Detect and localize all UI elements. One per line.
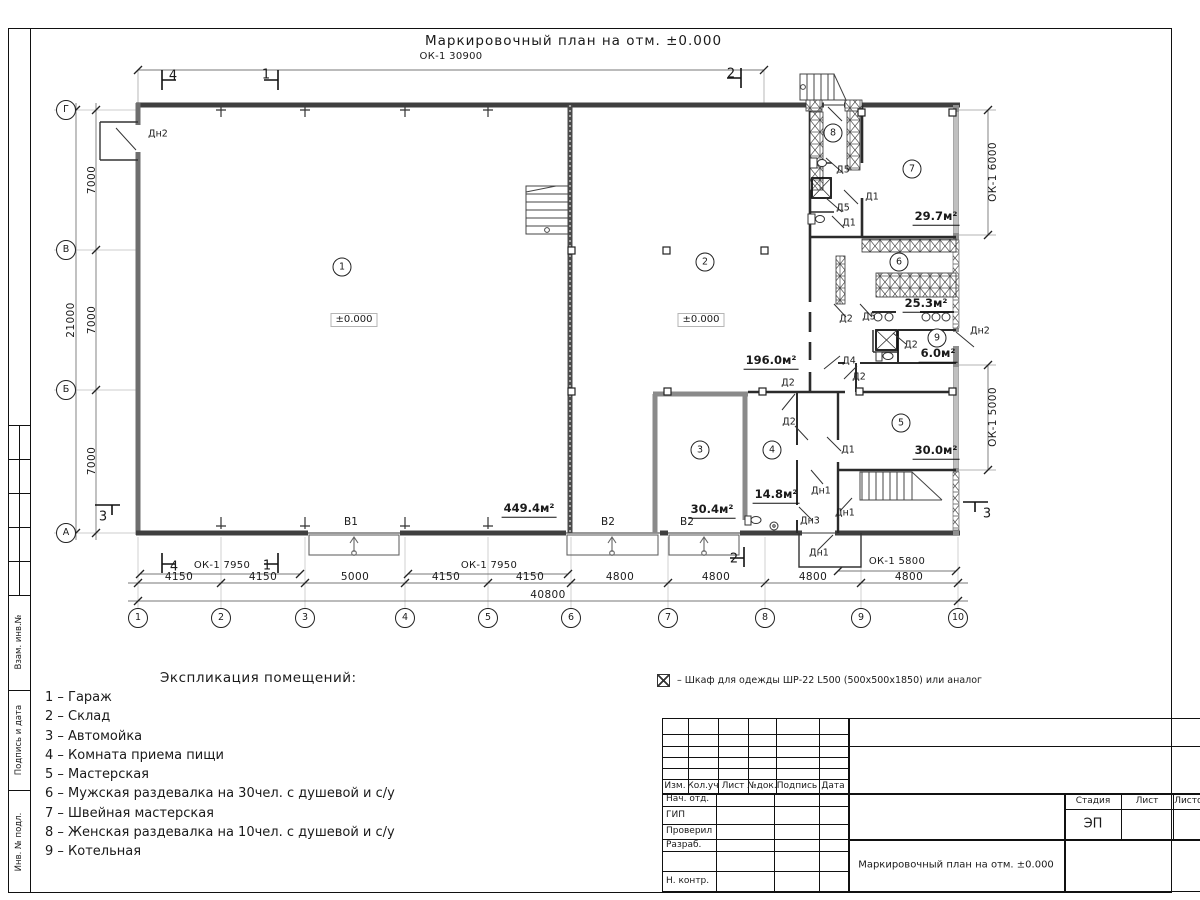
door-label: Дн1 <box>811 486 831 496</box>
gate-label: В2 <box>601 517 615 528</box>
room-number-bubble: 1 <box>333 258 352 277</box>
tb-stage-value: ЭП <box>1084 817 1103 832</box>
frame-top <box>8 28 1172 29</box>
window-dimension-label: ОК-1 5800 <box>869 557 925 567</box>
stamp-inv-podl: Инв. № подл. <box>14 813 24 872</box>
axis-bubble-column: 4 <box>395 608 415 628</box>
section-mark-label: 2 <box>727 68 735 81</box>
dimension-value: 4800 <box>702 572 730 583</box>
window-dimension-label: ОК-1 7950 <box>194 561 250 571</box>
axis-bubble-column: 2 <box>211 608 231 628</box>
room-area-label: 30.0м² <box>913 445 960 460</box>
tb-col-podpis: Подпись <box>777 781 817 791</box>
tb-doc-title: Маркировочный план на отм. ±0.000 <box>858 860 1054 871</box>
door-label: Д5 <box>862 312 875 322</box>
tb-row-nach-otd: Нач. отд. <box>666 794 709 804</box>
dimension-value-vertical: 7000 <box>87 166 98 194</box>
room-number-bubble: 5 <box>892 414 911 433</box>
room-number-bubble: 6 <box>890 253 909 272</box>
door-label: Д2 <box>782 417 795 427</box>
dimension-value: 40800 <box>530 590 565 601</box>
window-dimension-label: ОК-1 7950 <box>461 561 517 571</box>
axis-bubble-column: 8 <box>755 608 775 628</box>
wardrobe-note-text: – Шкаф для одежды ШР-22 L500 (500х500х18… <box>677 675 982 686</box>
legend-item: 7 – Швейная мастерская <box>45 804 395 823</box>
room-number-bubble: 7 <box>903 160 922 179</box>
axis-bubble-row: Б <box>56 380 76 400</box>
door-label: Дн2 <box>148 129 168 139</box>
dimension-value-vertical: 7000 <box>87 447 98 475</box>
dimension-value-vertical: ОК-1 5000 <box>988 387 999 447</box>
tb-sheet-header: Лист <box>1136 796 1159 806</box>
legend-item: 3 – Автомойка <box>45 727 395 746</box>
legend-list: 1 – Гараж2 – Склад3 – Автомойка4 – Комна… <box>45 688 395 862</box>
door-label: Д1 <box>865 192 878 202</box>
plan-title: Маркировочный план на отм. ±0.000 <box>425 33 722 49</box>
legend-item: 6 – Мужская раздевалка на 30чел. с душев… <box>45 784 395 803</box>
dimension-value: 4800 <box>606 572 634 583</box>
tb-row-proveril: Проверил <box>666 826 712 836</box>
gate-label: В2 <box>680 517 694 528</box>
room-number-bubble: 9 <box>928 329 947 348</box>
tb-sheets-header: Листов <box>1174 796 1200 806</box>
legend-item: 2 – Склад <box>45 707 395 726</box>
dimension-value-vertical: 7000 <box>87 306 98 334</box>
door-label: Д2 <box>839 314 852 324</box>
tb-col-izm: Изм. <box>664 781 685 791</box>
door-label: Д1 <box>842 218 855 228</box>
axis-bubble-row: Г <box>56 100 76 120</box>
tb-row-razrab: Разраб. <box>666 840 701 850</box>
door-label: Дн3 <box>800 516 820 526</box>
tb-col-list: Лист <box>722 781 745 791</box>
room-number-bubble: 8 <box>824 124 843 143</box>
dimension-value: 4150 <box>432 572 460 583</box>
window-dimension-label: ОК-1 30900 <box>420 52 483 62</box>
axis-bubble-row: В <box>56 240 76 260</box>
section-mark-label: 4 <box>169 70 177 83</box>
legend-item: 1 – Гараж <box>45 688 395 707</box>
legend-heading: Экспликация помещений: <box>160 670 357 686</box>
room-area-label: 449.4м² <box>502 503 557 518</box>
stamp-podpis-data: Подпись и дата <box>14 705 24 775</box>
section-mark-label: 1 <box>262 69 270 82</box>
tb-col-data: Дата <box>821 781 844 791</box>
tb-row-nkontr: Н. контр. <box>666 876 709 886</box>
door-label: Дн2 <box>970 326 990 336</box>
section-mark-label: 3 <box>983 508 991 521</box>
axis-bubble-column: 1 <box>128 608 148 628</box>
dimension-value-vertical: 21000 <box>66 302 77 337</box>
tb-row-gip: ГИП <box>666 810 685 820</box>
room-area-label: 196.0м² <box>744 355 799 370</box>
door-label: Дн1 <box>835 508 855 518</box>
door-label: Д5 <box>836 203 849 213</box>
gate-label: В1 <box>344 517 358 528</box>
level-mark: ±0.000 <box>330 313 377 327</box>
dimension-value: 4150 <box>516 572 544 583</box>
axis-bubble-column: 9 <box>851 608 871 628</box>
legend-item: 4 – Комната приема пищи <box>45 746 395 765</box>
door-label: Д1 <box>841 445 854 455</box>
door-label: Дн1 <box>809 548 829 558</box>
dimension-value: 4150 <box>165 572 193 583</box>
room-number-bubble: 4 <box>763 441 782 460</box>
axis-bubble-row: А <box>56 523 76 543</box>
room-area-label: 14.8м² <box>753 489 800 504</box>
axis-bubble-column: 5 <box>478 608 498 628</box>
dimension-value: 4800 <box>895 572 923 583</box>
dimension-value: 4150 <box>249 572 277 583</box>
room-area-label: 6.0м² <box>919 348 958 363</box>
door-label: Д2 <box>781 378 794 388</box>
drawing-sheet: Маркировочный план на отм. ±0.000 ОК-1 3… <box>0 0 1200 900</box>
stamp-vzam-inv: Взам. инв.№ <box>14 614 24 669</box>
room-area-label: 25.3м² <box>903 298 950 313</box>
door-label: Д5 <box>836 165 849 175</box>
title-block: Изм. Кол.уч Лист №док. Подпись Дата Нач.… <box>662 718 1200 892</box>
level-mark: ±0.000 <box>677 313 724 327</box>
axis-bubble-column: 7 <box>658 608 678 628</box>
side-stamp: Взам. инв.№ Подпись и дата Инв. № подл. <box>8 28 31 893</box>
legend-item: 8 – Женская раздевалка на 10чел. с душев… <box>45 823 395 842</box>
tb-col-ndok: №док. <box>747 781 776 791</box>
room-area-label: 29.7м² <box>913 211 960 226</box>
door-label: Д4 <box>842 356 855 366</box>
legend-item: 5 – Мастерская <box>45 765 395 784</box>
door-label: Д2 <box>904 340 917 350</box>
tb-col-koluch: Кол.уч <box>687 781 718 791</box>
wardrobe-symbol-icon <box>657 674 670 687</box>
section-mark-label: 2 <box>730 553 738 566</box>
frame-bottom <box>8 892 1172 893</box>
axis-bubble-column: 10 <box>948 608 968 628</box>
door-label: Д2 <box>852 372 865 382</box>
room-number-bubble: 3 <box>691 441 710 460</box>
dimension-value: 4800 <box>799 572 827 583</box>
axis-bubble-column: 3 <box>295 608 315 628</box>
dimension-value: 5000 <box>341 572 369 583</box>
axis-bubble-column: 6 <box>561 608 581 628</box>
dimension-value-vertical: ОК-1 6000 <box>988 142 999 202</box>
legend-item: 9 – Котельная <box>45 842 395 861</box>
section-mark-label: 3 <box>99 511 107 524</box>
room-number-bubble: 2 <box>696 253 715 272</box>
tb-stage-header: Стадия <box>1076 796 1111 806</box>
floor-plan-svg <box>0 0 1200 660</box>
room-area-label: 30.4м² <box>689 504 736 519</box>
